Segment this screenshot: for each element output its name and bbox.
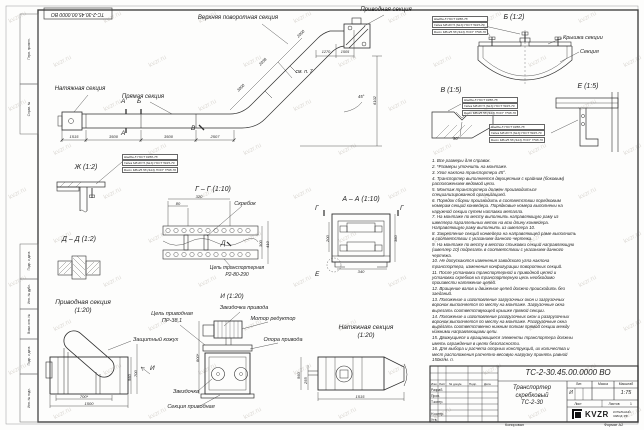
detail-gg-geometry [163, 199, 268, 267]
callout-nut: Гайка М8-6Н.5 (S13) ГОСТ 5915-70 [122, 160, 178, 166]
technical-notes: 1. Все размеры для справок. 2. *Размеры … [432, 158, 577, 363]
top-doc-number-text: ТС-2-30.45.00.0000 ВО [51, 11, 104, 17]
fastener-callout-b: Шайба 8 ГОСТ 6958-78 Гайка М8-6Н.5 (S13)… [432, 16, 488, 35]
section-cover-label: Крышка секции [563, 36, 603, 42]
drawing-sheet: kvzr.rukvzr.rukvzr.rukvzr.rukvzr.rukvzr.… [0, 0, 644, 430]
col-data: Дата [484, 382, 491, 386]
format-label: Формат А2 [604, 424, 623, 428]
dim-run-4: 2507 [211, 135, 220, 139]
cut-mark-a: А [121, 99, 125, 106]
note-item: 14. Положение и изготовление разгрузочны… [432, 314, 577, 335]
note-item: 7. На монтаже по месту выполнить направл… [432, 214, 577, 230]
cut-mark-d: Д [221, 241, 226, 248]
side-strip-label: Инв. № дубл. [27, 284, 31, 304]
dim-aa-380: 380 [394, 235, 398, 242]
note-item: 16. Для выбора и расчета опорных констру… [432, 346, 577, 362]
note-item: 4. Транспортер выполняется двухцепным с … [432, 176, 577, 187]
view-title-aa: А – А (1:10) [342, 196, 379, 203]
callout-bolt: Болт М8х25.58 (S13) ГОСТ 7798-70 [122, 167, 178, 173]
callout-washer: Шайба 8 ГОСТ 6958-78 [489, 124, 545, 130]
view-title-e: Е (1:5) [577, 83, 598, 90]
drive-sprocket-label: Звездочка привода [220, 306, 269, 312]
i-view-title: И (1:20) [220, 294, 243, 301]
cut-mark-a: А [121, 131, 125, 138]
view-title-dd: Д – Д (1:2) [62, 236, 96, 243]
fastener-callout-e: Шайба 8 ГОСТ 6958-78 Гайка М8-6Н.5 (S13)… [489, 124, 545, 143]
dim-drive-700v: 700 [134, 370, 138, 377]
dim-gg-320: 320 [196, 195, 203, 199]
note-item: 10. Не допускаются изменения заводского … [432, 258, 577, 269]
callout-washer: Шайба 8 ГОСТ 6958-78 [462, 97, 518, 103]
callout-bolt: Болт М8х25.58 (S13) ГОСТ 7798-70 [462, 110, 518, 116]
view-title-zh: Ж (1:2) [75, 164, 98, 171]
note-item: 5. Монтаж транспортера должен производит… [432, 187, 577, 198]
note-item: 2. *Размеры уточнить на монтаже. [432, 164, 577, 169]
dim-top-2: 1505 [341, 51, 349, 55]
cut-mark-i: И [150, 366, 155, 373]
see-note7-label: см. п. 7 [295, 70, 312, 75]
dim-i-800: 800* [196, 354, 200, 362]
callout-nut: Гайка М8-6Н.5 (S13) ГОСТ 5915-70 [489, 130, 545, 136]
col-podp: Подп. [469, 382, 477, 386]
fastener-callout-zh: Шайба 8 ГОСТ 6958-78 Гайка М8-6Н.5 (S13)… [122, 154, 178, 173]
cut-mark-v: В [191, 126, 195, 133]
note-item: 6. Порядок сборки производить в соответс… [432, 198, 577, 214]
dim-run-1: 1515 [70, 135, 79, 139]
drive-support-label: Опора привода [263, 338, 302, 344]
dim-aa-340: 340 [358, 270, 365, 274]
tension-section-geometry [301, 357, 407, 401]
tension-view-title: Натяжная секция [339, 325, 394, 332]
scraper-label: Скребок [234, 202, 255, 208]
note-item: 8. Закрепление секций конвейера на напра… [432, 231, 577, 242]
side-strip-label: Подп. и дата [27, 347, 31, 366]
row-nkontr: Н.контр. [431, 412, 444, 416]
dim-gg-80: 80 [176, 202, 180, 206]
liter-value: И [569, 391, 573, 396]
motor-reducer-label: Мотор редуктор [251, 317, 296, 323]
section-label: Секция [580, 50, 599, 56]
view-title-gg: Г – Г (1:10) [195, 186, 231, 193]
straight-section-label: Прямая секция [122, 94, 164, 100]
col-izm: Изм. [431, 382, 437, 386]
conveyor-chain-model: Р2-80-290 [225, 273, 248, 278]
drive-section-bottom-label: Секция приводная [167, 405, 214, 411]
doc-name-line3: ТС-2-30 [521, 400, 543, 406]
detail-dd-geometry [58, 256, 100, 279]
dim-top-1: 1270 [322, 51, 330, 55]
note-item: 3. Угол наклона транспортера 45°. [432, 170, 577, 175]
cut-mark-g: Г [400, 206, 404, 213]
kvzr-logo-text: KVZR [585, 411, 609, 419]
row-utv: Утв. [431, 418, 437, 422]
dim-gg-410: 410 [266, 241, 270, 248]
kopiroval-label: Копировал [505, 424, 524, 428]
side-strip-label: Взам. инв. № [27, 314, 31, 334]
callout-washer: Шайба 8 ГОСТ 6958-78 [432, 16, 488, 22]
tension-view-scale: (1:20) [358, 333, 375, 340]
fastener-callout-v: Шайба 8 ГОСТ 6958-78 Гайка М8-6Н.5 (S13)… [462, 97, 518, 116]
dim-run-2: 3500 [109, 135, 118, 139]
note-item: 13. Положение и изготовление загрузочных… [432, 297, 577, 313]
dim-drive-560: 560 [128, 374, 132, 381]
drive-view-title: Приводная секция [55, 300, 111, 307]
cut-mark-g: Г [315, 206, 319, 213]
top-doc-number-stamp: ТС-2-30.45.00.0000 ВО [44, 8, 112, 19]
callout-nut: Гайка М8-6Н.5 (S13) ГОСТ 5915-70 [462, 103, 518, 109]
callout-washer: Шайба 8 ГОСТ 6958-78 [122, 154, 178, 160]
tension-section-label: Натяжная секция [55, 86, 106, 92]
dim-aa-200: 200 [326, 235, 330, 242]
upper-turn-section-label: Верхняя поворотная секция [198, 15, 278, 21]
col-list: Лист [439, 382, 446, 386]
cut-mark-b: Б [137, 99, 141, 106]
note-item: 1. Все размеры для справок. [432, 158, 577, 163]
note-item: 12. Вращение валов и движение цепей долж… [432, 286, 577, 297]
drive-section-label: Приводная секция [360, 7, 411, 13]
mass-header: Масса [598, 382, 608, 386]
drive-view-scale: (1:20) [75, 308, 92, 315]
detail-b-geometry [478, 21, 579, 84]
dim-run-3: 3500 [164, 135, 173, 139]
dim-height: 6102 [373, 96, 377, 105]
dim-angle-90: 90° [453, 137, 459, 141]
sprocket-label: Звездочка [173, 390, 199, 396]
sheet-header: Лист [574, 402, 581, 406]
lit-header: Лит. [576, 382, 582, 386]
view-title-v: В (1:5) [440, 87, 461, 94]
note-item: 9. На монтаже по месту в местах стыковки… [432, 242, 577, 258]
dim-tens-560: 560 [297, 372, 301, 379]
guard-label: Защитный кожух [133, 338, 178, 344]
side-strip-label: Перв. примен. [27, 38, 31, 59]
col-doc: № докум. [449, 382, 462, 386]
detail-e-geometry [551, 92, 618, 152]
side-strip-label: Инв. № подл. [27, 388, 31, 408]
dim-gg-300: 300 [259, 240, 263, 247]
sheets-value: 1 [630, 402, 632, 406]
dim-drive-1500: 1500 [85, 402, 94, 406]
doc-number: ТС-2-30.45.00.0000 ВО [525, 369, 610, 377]
cut-mark-e: Е [315, 272, 319, 279]
callout-bolt: Болт М8х25.58 (S13) ГОСТ 7798-70 [489, 137, 545, 143]
scale-header: Масштаб [619, 382, 634, 386]
doc-name-line1: Транспортер [513, 385, 551, 391]
dim-tens-255: 255 [304, 377, 308, 384]
scale-value: 1:75 [621, 391, 632, 397]
side-strip-label: Подп. и дата [27, 252, 31, 271]
conveyor-chain-label: Цепь транспортерная [210, 266, 264, 271]
note-item: 11. После установки транспортерной и при… [432, 270, 577, 286]
kvzr-logo-icon [572, 409, 582, 419]
dim-drive-700: 700* [80, 395, 88, 399]
view-title-b: Б (1:2) [504, 14, 525, 21]
callout-nut: Гайка М8-6Н.5 (S13) ГОСТ 5915-70 [432, 22, 488, 28]
dim-tens-1515: 1515 [356, 395, 365, 399]
row-razrab: Разраб. [431, 388, 443, 392]
detail-aa-geometry [324, 210, 398, 272]
row-tkontr: Т.контр. [431, 400, 443, 404]
doc-name-line2: скребковый [516, 393, 549, 399]
note-item: 15. Движущиеся и вращающиеся элементы тр… [432, 335, 577, 346]
drive-chain-model: ПР-38,1 [162, 319, 182, 325]
callout-bolt: Болт М8х25.58 (S13) ГОСТ 7798-70 [432, 29, 488, 35]
sheets-header: Листов [608, 402, 619, 406]
side-strip-label: Справ. № [27, 102, 31, 116]
main-view-geometry [58, 15, 384, 146]
dim-angle-45: 45° [358, 95, 364, 99]
row-prov: Пров. [431, 394, 440, 398]
logo-subtext-2: ЗАВОД .РФ [613, 415, 628, 418]
